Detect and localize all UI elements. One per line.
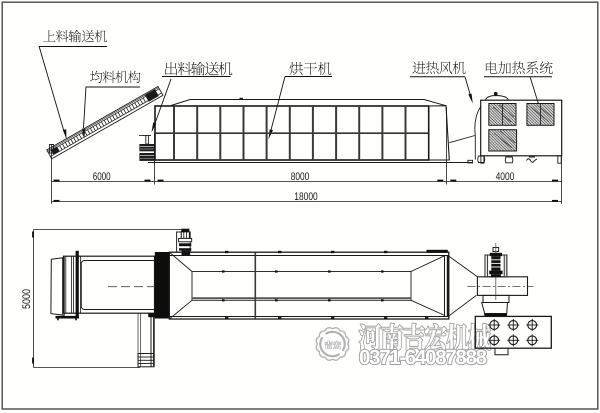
svg-text:6000: 6000 <box>93 171 111 183</box>
svg-text:4000: 4000 <box>496 171 515 183</box>
svg-text:0371-64087888: 0371-64087888 <box>359 346 487 369</box>
svg-text:5000: 5000 <box>21 289 33 309</box>
svg-text:8000: 8000 <box>291 171 310 183</box>
svg-text:18000: 18000 <box>294 191 318 203</box>
